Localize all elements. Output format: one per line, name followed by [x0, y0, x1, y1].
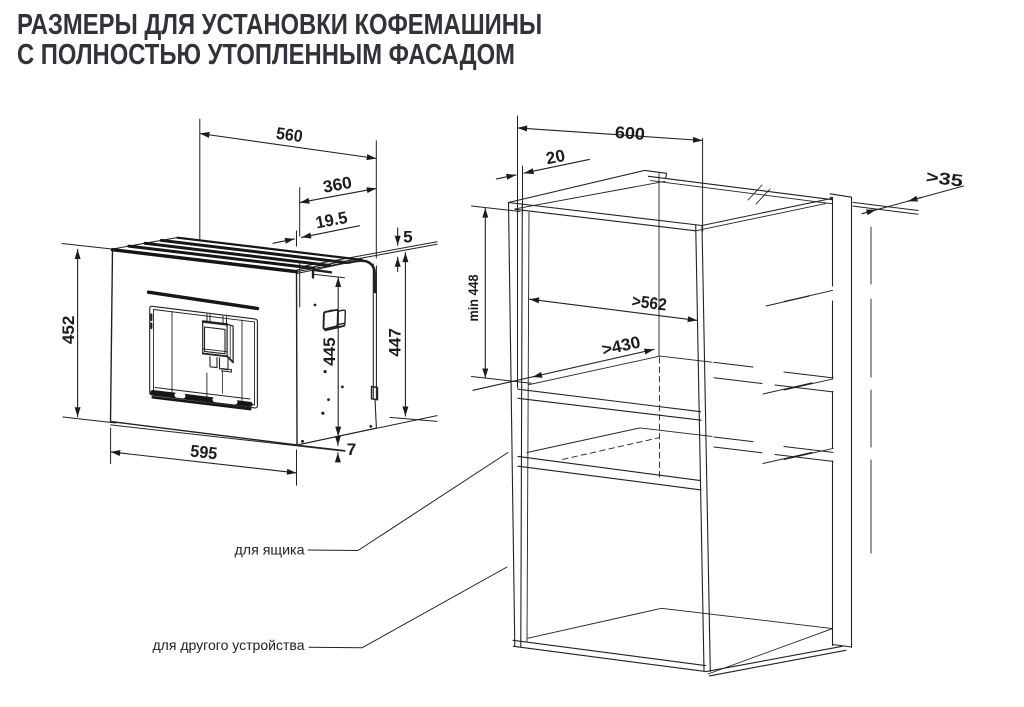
svg-text:для другого устройства: для другого устройства: [153, 637, 305, 653]
svg-text:>430: >430: [600, 333, 642, 360]
svg-text:560: 560: [275, 124, 304, 147]
svg-text:min 448: min 448: [466, 274, 481, 321]
svg-text:>562: >562: [631, 291, 668, 314]
svg-text:5: 5: [403, 228, 412, 247]
svg-text:595: 595: [189, 441, 218, 463]
svg-text:447: 447: [386, 328, 405, 357]
svg-text:7: 7: [347, 440, 356, 459]
svg-text:600: 600: [614, 123, 645, 144]
svg-text:452: 452: [59, 316, 78, 345]
svg-text:>35: >35: [925, 167, 964, 190]
svg-text:20: 20: [544, 146, 566, 168]
svg-text:для ящика: для ящика: [235, 542, 305, 558]
svg-text:445: 445: [320, 337, 339, 366]
